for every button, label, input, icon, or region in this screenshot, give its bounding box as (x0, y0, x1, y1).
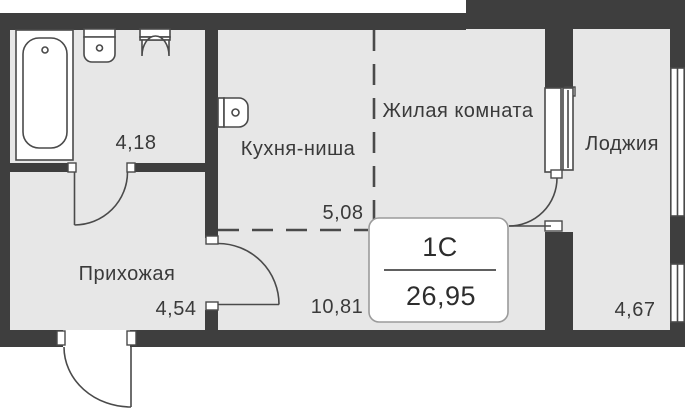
floor-plan: 1С 26,95 4,18 Кухня-ниша 5,08 Жилая комн… (0, 0, 685, 409)
sink-icon (84, 29, 115, 62)
kitchen-niche-label: Кухня-ниша (241, 138, 356, 160)
living-room-label: Жилая комната (383, 100, 534, 122)
entrance-door-icon (57, 331, 136, 407)
loggia-label: Лоджия (585, 133, 659, 155)
loggia-area-label: 4,67 (615, 299, 656, 321)
hallway-area-label: 4,54 (156, 298, 197, 320)
kitchen-niche-area-label: 5,08 (323, 202, 364, 224)
unit-type-label: 1С (422, 232, 458, 262)
balcony-door-hinge-marker (551, 170, 562, 178)
total-area-label: 26,95 (406, 281, 476, 311)
bathtub-icon (16, 30, 73, 160)
living-room-area-label: 10,81 (311, 296, 364, 318)
loggia-window-icon (671, 68, 684, 322)
unit-badge: 1С 26,95 (369, 218, 508, 322)
balcony-door-panel (545, 88, 561, 172)
bathroom-area-label: 4,18 (116, 132, 157, 154)
hallway-label: Прихожая (79, 263, 176, 285)
kitchen-sink-icon (218, 98, 248, 127)
